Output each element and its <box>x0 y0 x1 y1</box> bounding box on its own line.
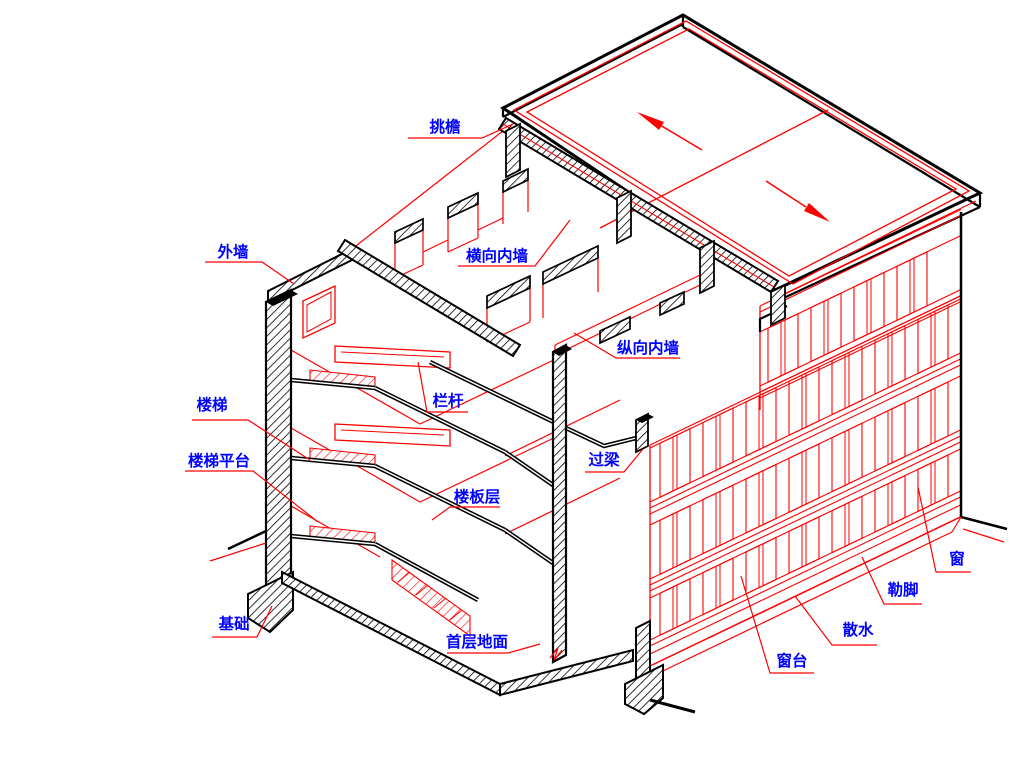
label-hengxiang-neiqiang: 横向内墙 <box>466 246 529 265</box>
facade-window <box>660 579 690 635</box>
ground-line-right-red <box>963 529 1004 542</box>
facade-window <box>660 429 690 497</box>
facade-window <box>832 423 862 491</box>
label-tiaoyan: 挑檐 <box>429 117 461 136</box>
label-langan: 栏杆 <box>432 391 464 410</box>
facade-window <box>703 485 733 553</box>
facade-window <box>918 455 948 511</box>
facade-window <box>811 293 841 361</box>
slab-to-lintel-band <box>566 428 636 446</box>
label-louti: 楼梯 <box>196 395 228 414</box>
ground-slab-band <box>500 650 633 695</box>
label-lejiao: 勒脚 <box>887 580 918 599</box>
facade-static <box>640 212 1007 682</box>
ground-line-left-red <box>210 543 266 561</box>
facade-window <box>875 403 905 471</box>
leader-louti-pingtai <box>185 471 318 522</box>
ground-line-front <box>650 700 695 712</box>
facade-window <box>897 252 927 320</box>
label-sanshui: 散水 <box>842 620 874 639</box>
wall-cut-cap <box>448 193 478 218</box>
label-shouceng-dimian: 首层地面 <box>446 632 508 651</box>
label-louban-ceng: 楼板层 <box>454 487 501 506</box>
wall-cut-cap <box>543 246 598 284</box>
facade-window <box>918 382 948 450</box>
parapet-cut-stub <box>506 124 520 177</box>
label-waiqiang: 外墙 <box>217 242 249 261</box>
label-chuangtai: 窗台 <box>776 651 807 670</box>
facade-window <box>854 272 884 340</box>
wall-cut-stub <box>700 241 714 293</box>
roof-eave-outline <box>503 15 980 290</box>
lintel-cut <box>636 414 654 452</box>
label-jichu: 基础 <box>217 614 249 633</box>
facade-window <box>789 517 819 573</box>
facade-window <box>746 538 776 594</box>
label-louti-pingtai: 楼梯平台 <box>188 451 250 470</box>
facade-window <box>789 444 819 512</box>
wall-cut-cap <box>660 292 684 315</box>
facade-window <box>746 465 776 533</box>
wall-cut-stub <box>617 191 631 243</box>
axonometric-building-diagram: 挑檐外墙横向内墙纵向内墙栏杆楼梯楼梯平台楼板层过梁基础首层地面窗台散水勒脚窗 <box>0 0 1024 768</box>
stair-treads-hatch <box>392 560 470 636</box>
wall-cut-cap <box>487 276 530 308</box>
ground-line-left <box>228 531 266 549</box>
middle-wall-band <box>553 345 566 662</box>
leader-waiqiang <box>205 262 294 284</box>
exterior-wall-band <box>266 290 291 586</box>
facade-window <box>703 408 733 476</box>
facade-line <box>650 497 961 646</box>
wall-cut-stub <box>771 285 785 325</box>
label-zongxiang-neiqiang: 纵向内墙 <box>617 338 680 357</box>
wall-window-opening <box>303 286 335 338</box>
facade-window <box>875 476 905 532</box>
ground-line-right <box>961 517 1007 529</box>
label-guoliang: 过梁 <box>588 450 620 469</box>
facade-window <box>832 496 862 552</box>
building-section-figure: 挑檐外墙横向内墙纵向内墙栏杆楼梯楼梯平台楼板层过梁基础首层地面窗台散水勒脚窗 <box>0 0 1024 768</box>
facade-window <box>703 558 733 614</box>
label-chuang: 窗 <box>949 549 965 568</box>
facade-window <box>660 506 690 574</box>
wall-cut-cap <box>395 219 423 243</box>
stair-railing-wall <box>335 424 450 446</box>
